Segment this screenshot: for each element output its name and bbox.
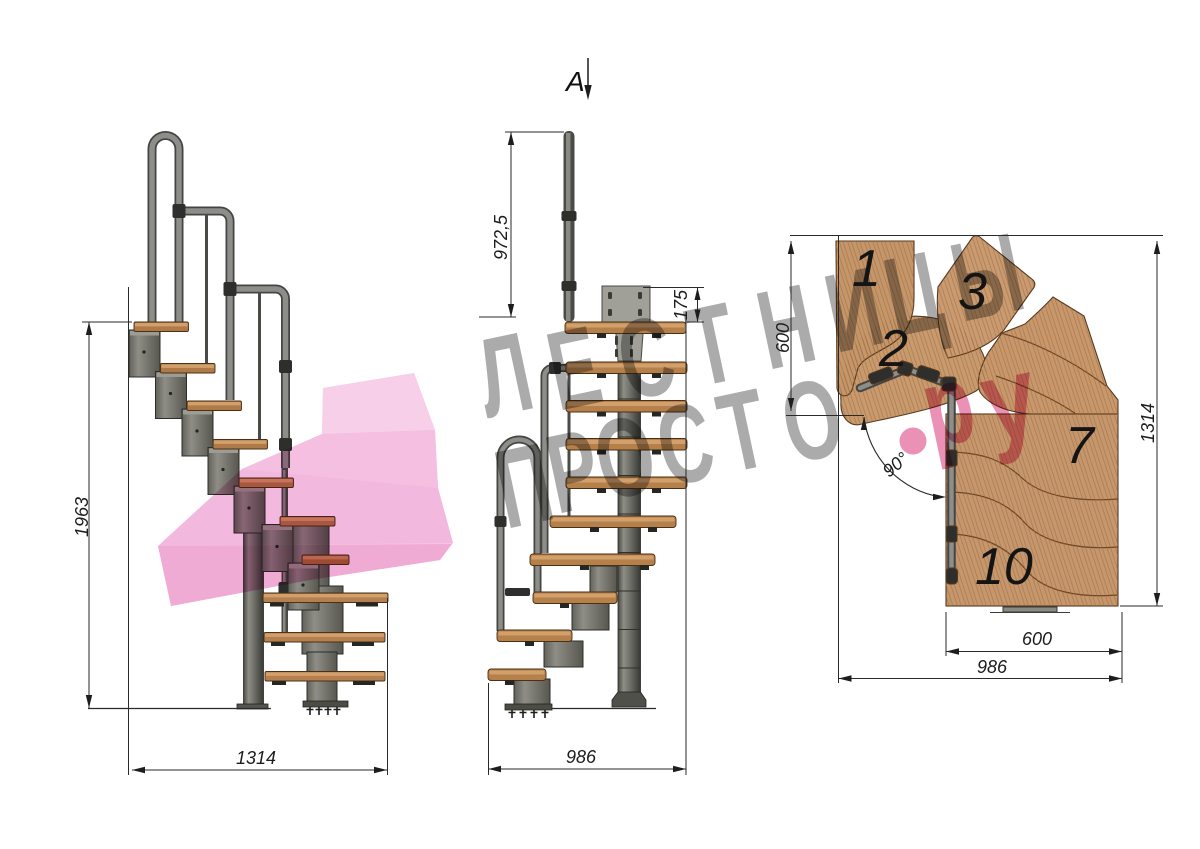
- svg-text:A: A: [564, 66, 585, 97]
- svg-text:2: 2: [878, 320, 908, 378]
- svg-text:986: 986: [977, 657, 1008, 677]
- svg-text:600: 600: [773, 323, 793, 353]
- svg-text:1314: 1314: [1138, 403, 1158, 443]
- svg-text:7: 7: [1065, 417, 1096, 475]
- svg-text:3: 3: [958, 263, 987, 321]
- svg-text:1963: 1963: [72, 497, 92, 537]
- svg-text:1: 1: [852, 240, 881, 298]
- svg-text:1314: 1314: [236, 748, 276, 768]
- svg-text:986: 986: [566, 747, 597, 767]
- svg-text:175: 175: [671, 289, 691, 320]
- svg-text:10: 10: [975, 538, 1033, 596]
- svg-text:972,5: 972,5: [491, 214, 511, 260]
- svg-text:600: 600: [1022, 629, 1052, 649]
